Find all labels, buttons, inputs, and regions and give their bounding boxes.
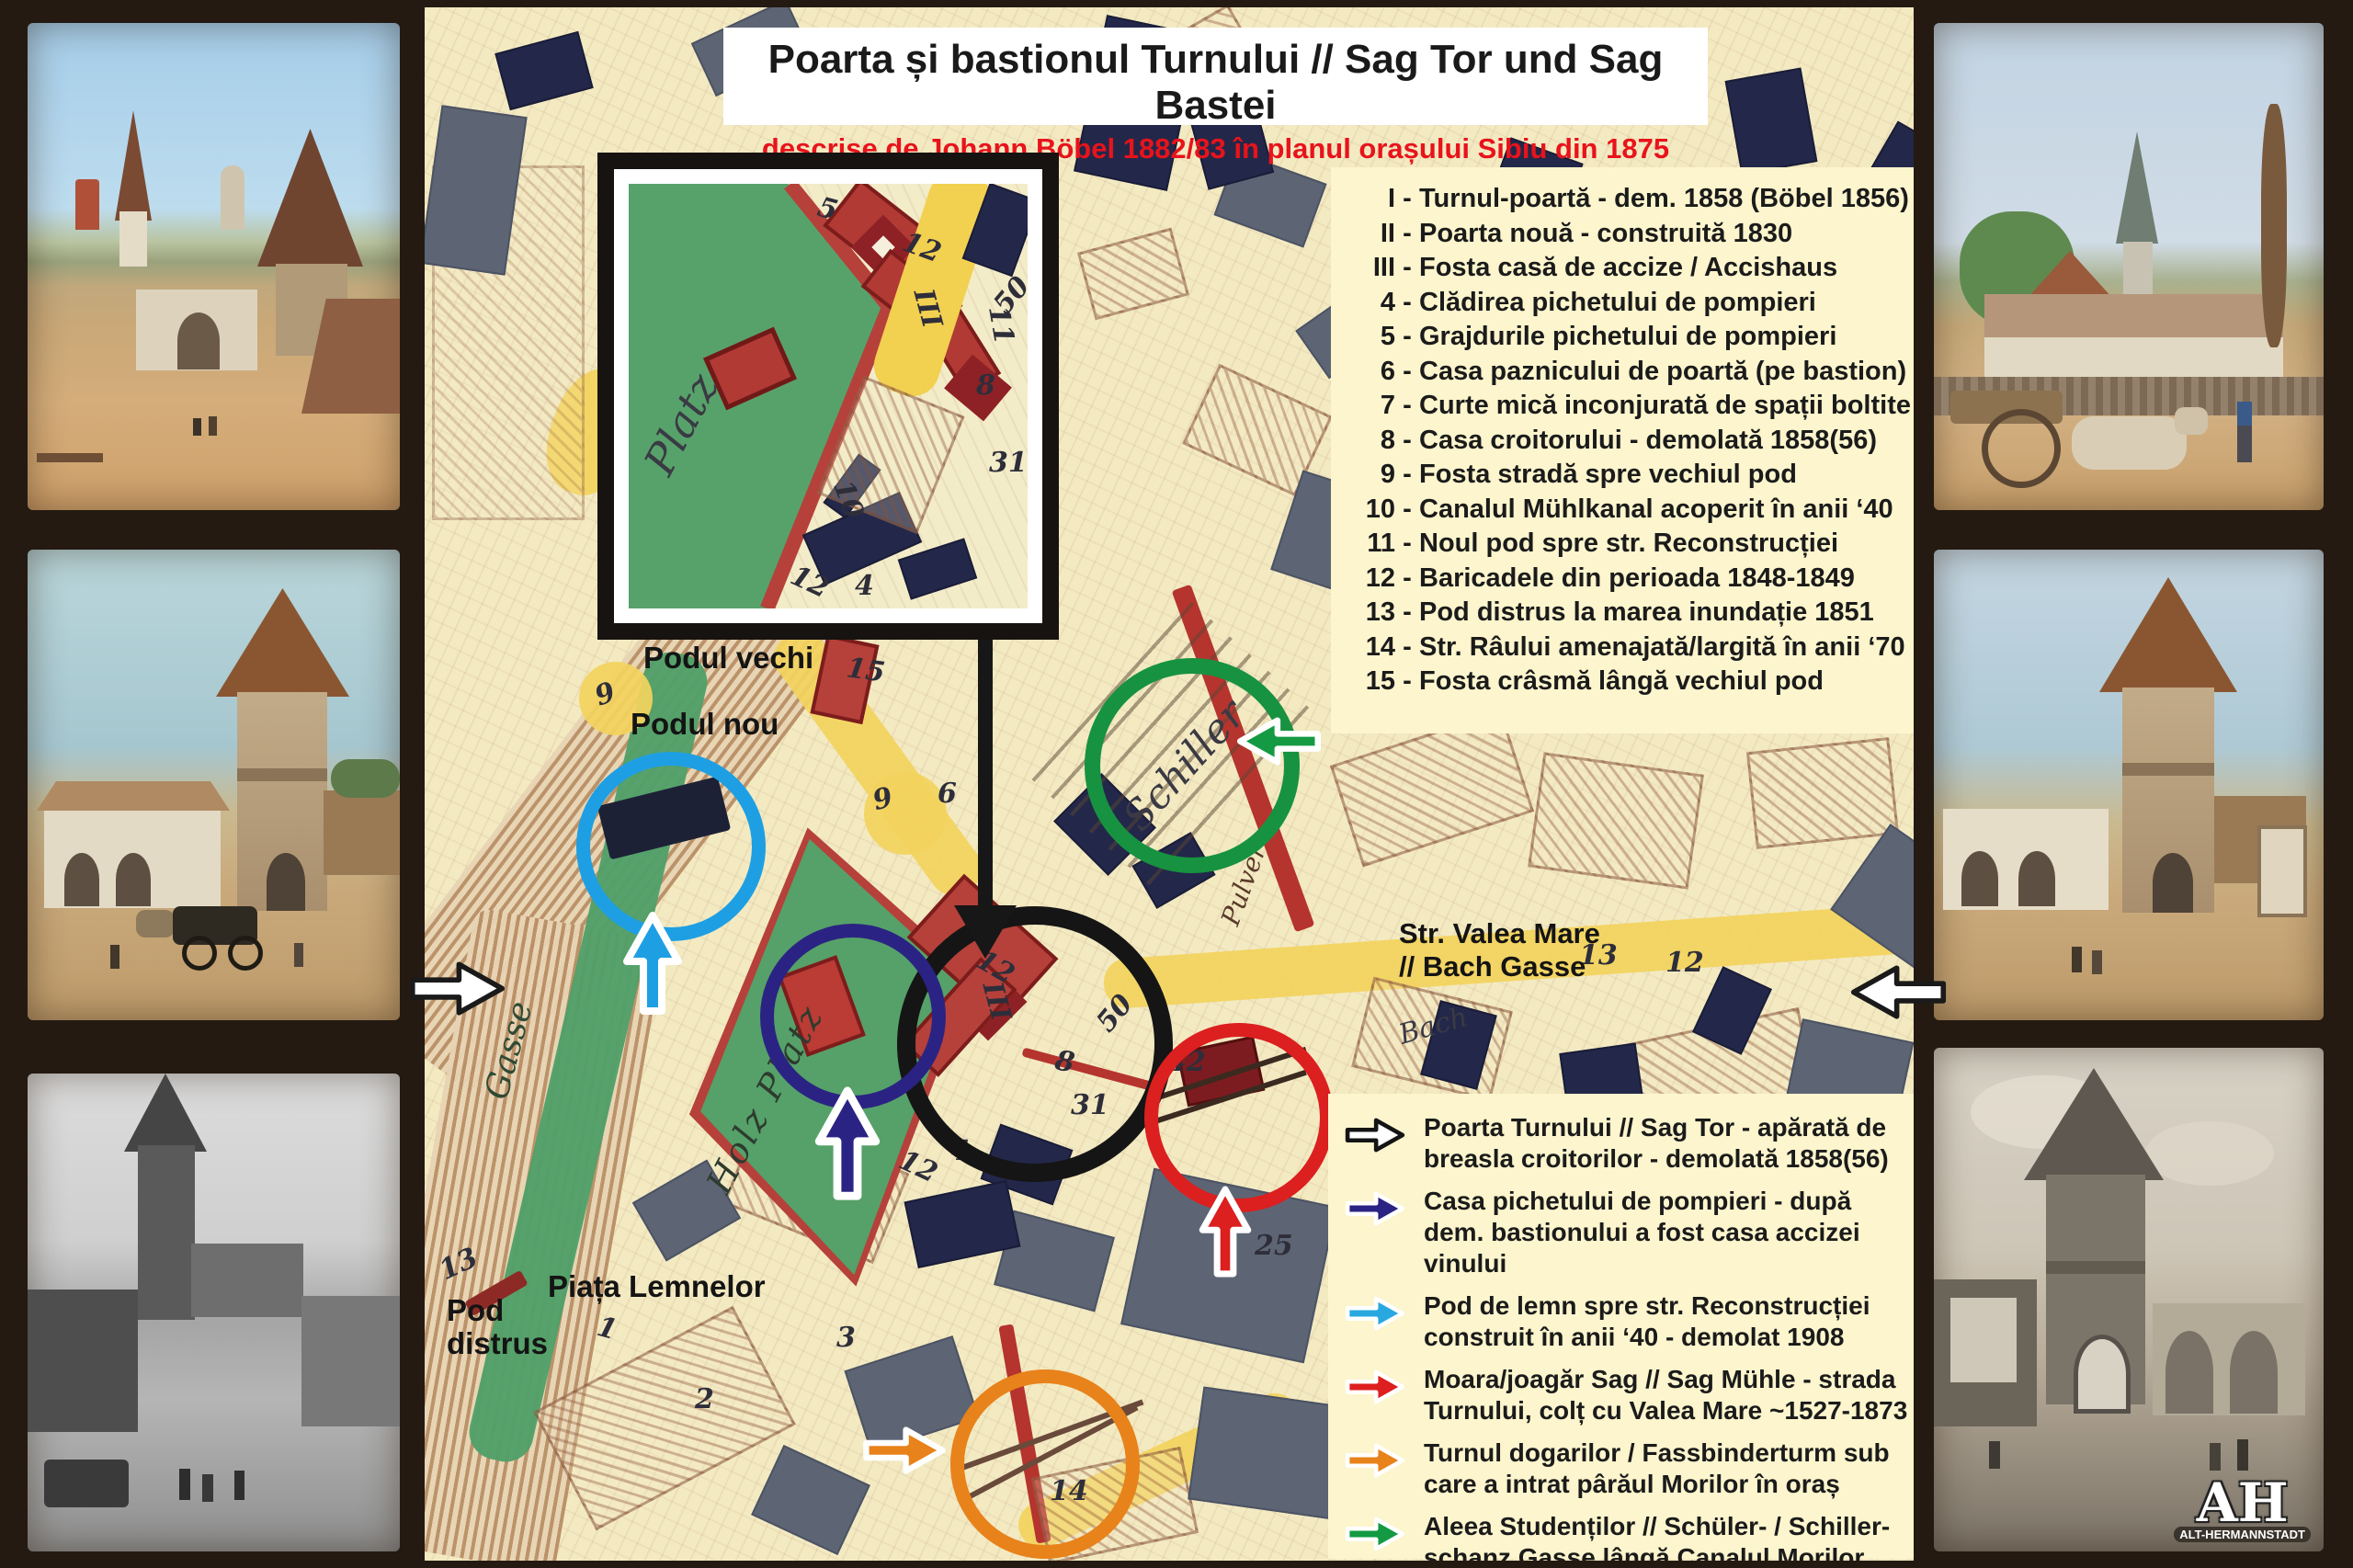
arrow-legend-text: Casa pichetului de pompieri - după dem. … (1424, 1186, 1914, 1279)
title-box: Poarta și bastionul Turnului // Sag Tor … (723, 28, 1708, 125)
label-valea-mare-line2: // Bach Gasse (1399, 950, 1600, 983)
tower-battlement (2046, 1261, 2145, 1274)
tower-battlement (2122, 763, 2214, 776)
legend-item: 9-Fosta stradă spre vechiul pod (1336, 458, 1914, 493)
circle-orange-fassbinderturm (950, 1369, 1140, 1559)
house-arch (116, 853, 151, 906)
white-arrow-icon (1341, 1114, 1409, 1156)
legend-item: 10-Canalul Mühlkanal acoperit în anii ‘4… (1336, 493, 1914, 528)
arrow-legend-item: Aleea Studenților // Schüler- / Schiller… (1341, 1511, 1914, 1561)
legend-text: Turnul-poartă - dem. 1858 (Böbel 1856) (1419, 182, 1909, 217)
arrow-legend-text: Poarta Turnului // Sag Tor - apărată de … (1424, 1112, 1914, 1175)
green-arrow (1233, 711, 1325, 771)
label-podul-vechi: Podul vechi (643, 642, 813, 675)
legend-text: Noul pod spre str. Reconstrucției (1419, 527, 1838, 562)
church-tower-body (119, 211, 147, 267)
tower-gate-arch (2153, 853, 2193, 913)
legend-text: Fosta crâsmă lângă vechiul pod (1419, 665, 1824, 699)
legend-item: III-Fosta casă de accize / Accishaus (1336, 251, 1914, 286)
dome-tower (221, 165, 244, 230)
figure (193, 418, 201, 436)
ox-head (2175, 407, 2208, 435)
watermark-subtitle: ALT-HERMANNSTADT (2174, 1527, 2311, 1542)
legend-item: 6-Casa paznicului de poartă (pe bastion) (1336, 355, 1914, 390)
page-title: Poarta și bastionul Turnului // Sag Tor … (723, 37, 1708, 129)
carriage-wheel (228, 936, 263, 971)
arrow-legend-item: Moara/joagăr Sag // Sag Mühle - strada T… (1341, 1364, 1914, 1426)
legend-num: 6 (1336, 355, 1395, 390)
legend-text: Grajdurile pichetului de pompieri (1419, 320, 1836, 355)
figure (209, 416, 217, 436)
legend-num: 7 (1336, 389, 1395, 424)
legend-num: II (1336, 217, 1395, 252)
arrow-legend-text: Aleea Studenților // Schüler- / Schiller… (1424, 1511, 1914, 1561)
horse (136, 910, 175, 937)
painting-sag-tower-street-scene (28, 550, 400, 1020)
map-building-dark (1725, 67, 1818, 175)
carriage-wheel (182, 936, 217, 971)
label-pod-distrus: Pod distrus (447, 1294, 548, 1360)
arrow-legend-item: Casa pichetului de pompieri - după dem. … (1341, 1186, 1914, 1279)
green-arrow-icon (1341, 1513, 1409, 1555)
figure (110, 945, 119, 969)
houses-left (28, 1290, 138, 1432)
white-arrow-right-edge (1846, 958, 1951, 1027)
legend-sep: - (1395, 286, 1419, 321)
legend-item: 4-Clădirea pichetului de pompieri (1336, 286, 1914, 321)
legend-sep: - (1395, 251, 1419, 286)
house-right (301, 1296, 400, 1426)
engraving-bw-sag-tower-gate: AH ALT-HERMANNSTADT (1934, 1048, 2324, 1551)
legend-numbered: I-Turnul-poartă - dem. 1858 (Böbel 1856)… (1331, 167, 1914, 733)
legend-text: Fosta casă de accize / Accishaus (1419, 251, 1837, 286)
arrow-legend-text: Pod de lemn spre str. Reconstrucției con… (1424, 1290, 1914, 1353)
legend-item: 11-Noul pod spre str. Reconstrucției (1336, 527, 1914, 562)
legend-sep: - (1395, 631, 1419, 665)
map-number: 6 (938, 778, 957, 810)
painting-city-panorama-with-ox-cart (1934, 23, 2324, 510)
legend-item: 7-Curte mică inconjurată de spații bolti… (1336, 389, 1914, 424)
legend-item: 14-Str. Râului amenajată/largită în anii… (1336, 631, 1914, 665)
legend-num: 13 (1336, 596, 1395, 631)
painting-sag-gate-and-city-wall (28, 23, 400, 510)
legend-sep: - (1395, 665, 1419, 699)
photo-bw-street-with-church-tower (28, 1074, 400, 1551)
legend-sep: - (1395, 389, 1419, 424)
label-valea-mare: Str. Valea Mare // Bach Gasse (1399, 917, 1600, 983)
legend-text: Pod distrus la marea inundație 1851 (1419, 596, 1874, 631)
legend-item: 15-Fosta crâsmă lângă vechiul pod (1336, 665, 1914, 699)
legend-item: I-Turnul-poartă - dem. 1858 (Böbel 1856) (1336, 182, 1914, 217)
map-number: 3 (836, 1322, 856, 1354)
arrow-legend-text: Moara/joagăr Sag // Sag Mühle - strada T… (1424, 1364, 1914, 1426)
legend-text: Casa paznicului de poartă (pe bastion) (1419, 355, 1906, 390)
figure (294, 943, 303, 967)
legend-text: Clădirea pichetului de pompieri (1419, 286, 1816, 321)
legend-text: Poarta nouă - construită 1830 (1419, 217, 1792, 252)
label-podul-nou: Podul nou (631, 708, 779, 741)
legend-text: Str. Râului amenajată/largită în anii ‘7… (1419, 631, 1905, 665)
inset-number: 31 (989, 447, 1028, 479)
tower-roof (2099, 577, 2237, 692)
house-arch (1961, 851, 1998, 906)
legend-num: III (1336, 251, 1395, 286)
legend-item: 13-Pod distrus la marea inundație 1851 (1336, 596, 1914, 631)
legend-text: Fosta stradă spre vechiul pod (1419, 458, 1797, 493)
map-block (1330, 710, 1534, 868)
map-block (1077, 228, 1189, 321)
gate-arch (2165, 1331, 2213, 1414)
legend-num: 11 (1336, 527, 1395, 562)
tower-gate-arch (2074, 1335, 2131, 1414)
legend-sep: - (1395, 493, 1419, 528)
infographic-page: AH ALT-HERMANNSTADT (0, 0, 2353, 1568)
arrow-legend-item: Turnul dogarilor / Fassbinderturm sub ca… (1341, 1437, 1914, 1500)
figure (1989, 1441, 2000, 1469)
house-roof (37, 781, 230, 811)
house-arch (64, 853, 99, 906)
white-arrow-left-edge (404, 954, 510, 1023)
legend-text: Casa croitorului - demolată 1858(56) (1419, 424, 1877, 459)
city-plan-map: 9 15 9 6 12 III 8 31 50 42 25 12 4 14 13… (425, 7, 1914, 1561)
arrow-legend-item: Poarta Turnului // Sag Tor - apărată de … (1341, 1112, 1914, 1175)
label-valea-mare-line1: Str. Valea Mare (1399, 917, 1600, 950)
figure (2072, 947, 2082, 972)
legend-sep: - (1395, 355, 1419, 390)
figure (2210, 1443, 2221, 1471)
legend-sep: - (1395, 596, 1419, 631)
red-tower (75, 179, 99, 230)
church-nave (191, 1244, 303, 1317)
label-pod-line2: distrus (447, 1327, 548, 1360)
legend-num: I (1336, 182, 1395, 217)
figure (2092, 950, 2102, 974)
inset-detail-map: Platz 5 12 III 11 50 8 31 10 12 4 (597, 153, 1059, 640)
red-arrow (1188, 1183, 1262, 1280)
legend-item: II-Poarta nouă - construită 1830 (1336, 217, 1914, 252)
arrow-legend-item: Pod de lemn spre str. Reconstrucției con… (1341, 1290, 1914, 1353)
ox (2072, 416, 2187, 470)
legend-text: Baricadele din perioada 1848-1849 (1419, 562, 1855, 597)
figure (234, 1471, 244, 1500)
inset-pointer-shaft (978, 634, 993, 915)
legend-item: 8-Casa croitorului - demolată 1858(56) (1336, 424, 1914, 459)
legend-num: 15 (1336, 665, 1395, 699)
church-spire (124, 1074, 207, 1152)
circle-navy-fire-station (760, 924, 946, 1109)
city-wall (324, 790, 400, 875)
watermark-initials: AH (2174, 1471, 2311, 1534)
map-block (1528, 752, 1704, 889)
red-arrow-icon (1341, 1366, 1409, 1408)
legend-num: 4 (1336, 286, 1395, 321)
navy-arrow-icon (1341, 1187, 1409, 1230)
fence (37, 453, 103, 462)
legend-text: Curte mică inconjurată de spații boltite (1419, 389, 1911, 424)
legend-sep: - (1395, 527, 1419, 562)
tower-roof (216, 588, 349, 697)
house-arch (2018, 851, 2055, 906)
legend-num: 12 (1336, 562, 1395, 597)
blue-arrow-icon (1341, 1292, 1409, 1335)
trees (331, 759, 400, 798)
cart-wheel (1982, 409, 2061, 488)
legend-num: 5 (1336, 320, 1395, 355)
gate-door (2257, 825, 2307, 917)
figure (179, 1469, 190, 1500)
church-spire (115, 110, 152, 221)
legend-sep: - (1395, 562, 1419, 597)
navy-arrow (807, 1083, 888, 1204)
white-wall (1950, 1298, 2017, 1382)
gate-arch (177, 312, 220, 369)
gate-arch (2230, 1331, 2278, 1414)
legend-num: 9 (1336, 458, 1395, 493)
legend-num: 10 (1336, 493, 1395, 528)
wall-band (1984, 337, 2283, 381)
orange-arrow (853, 1421, 956, 1480)
tower-battlement (237, 768, 327, 781)
inset-number: 8 (976, 369, 995, 402)
legend-num: 14 (1336, 631, 1395, 665)
legend-sep: - (1395, 217, 1419, 252)
map-building-dark (494, 31, 593, 110)
painting-sag-tower-gate (1934, 550, 2324, 1020)
cart (44, 1460, 129, 1507)
legend-sep: - (1395, 458, 1419, 493)
legend-text: Canalul Mühlkanal acoperit în anii ‘40 (1419, 493, 1893, 528)
legend-sep: - (1395, 320, 1419, 355)
inset-number: 4 (855, 570, 874, 602)
map-number: 15 (845, 652, 887, 688)
legend-sep: - (1395, 424, 1419, 459)
orange-arrow-icon (1341, 1439, 1409, 1482)
legend-sep: - (1395, 182, 1419, 217)
watermark: AH ALT-HERMANNSTADT (2174, 1471, 2311, 1542)
figure (202, 1474, 213, 1502)
legend-item: 12-Baricadele din perioada 1848-1849 (1336, 562, 1914, 597)
arrow-legend-text: Turnul dogarilor / Fassbinderturm sub ca… (1424, 1437, 1914, 1500)
tower-gate-arch (267, 853, 305, 911)
map-number: 12 (1665, 947, 1704, 979)
blue-arrow (616, 908, 689, 1018)
church-spire (2116, 131, 2158, 244)
legend-num: 8 (1336, 424, 1395, 459)
gate-tower-roof (257, 129, 363, 267)
poplar-tree (2261, 104, 2287, 347)
legend-item: 5-Grajdurile pichetului de pompieri (1336, 320, 1914, 355)
label-pod-line1: Pod (447, 1294, 548, 1327)
map-block (1746, 737, 1899, 849)
map-number: 2 (695, 1383, 714, 1415)
legend-arrows: Poarta Turnului // Sag Tor - apărată de … (1328, 1094, 1914, 1559)
church-tower (138, 1145, 195, 1320)
label-piata-lemnelor: Piața Lemnelor (548, 1270, 766, 1303)
cloud (2145, 1121, 2274, 1186)
man-shirt (2237, 402, 2252, 426)
figure (2237, 1439, 2248, 1471)
inset-map-content: Platz 5 12 III 11 50 8 31 10 12 4 (629, 184, 1028, 608)
